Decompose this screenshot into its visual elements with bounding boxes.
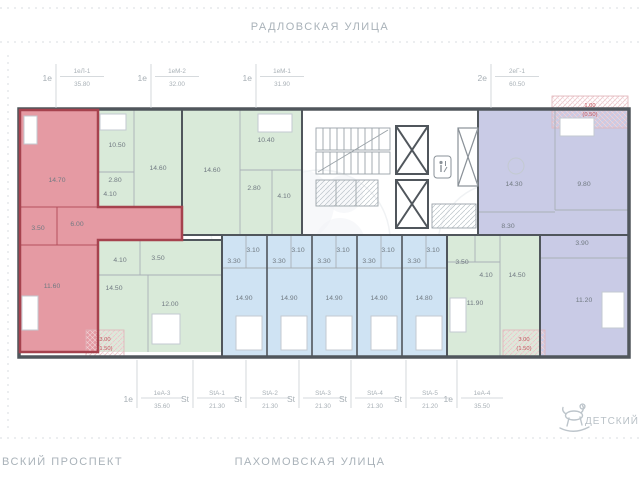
- room-label: 4.10: [113, 257, 126, 264]
- street-bottom-center: ПАХОМОВСКАЯ УЛИЦА: [235, 456, 386, 468]
- elevator-shafts: [396, 126, 428, 228]
- room-label: 3.10: [426, 247, 439, 254]
- svg-text:35.80: 35.80: [74, 81, 90, 88]
- room-label: 14.90: [370, 295, 387, 302]
- svg-text:21.20: 21.20: [422, 403, 438, 410]
- floorplan-svg: РАДЛОВСКАЯ УЛИЦА ПАХОМОВСКАЯ УЛИЦА ВСКИЙ…: [0, 0, 640, 480]
- svg-text:21.30: 21.30: [315, 403, 331, 410]
- room-label: 3.10: [291, 247, 304, 254]
- balcony-counted: (1.50): [516, 346, 531, 352]
- balcony-area: 3.00: [518, 337, 529, 343]
- room-label: 3.90: [575, 240, 588, 247]
- svg-text:32.00: 32.00: [169, 81, 185, 88]
- room-label: 14.70: [48, 177, 65, 184]
- unit-callout[interactable]: St StА-1 21.30: [181, 360, 237, 410]
- room-label: 3.30: [272, 258, 285, 265]
- room-label: 14.90: [280, 295, 297, 302]
- bottom-unit-labels: 1е 1еА-3 35.60 St StА-1 21.30 St StА-2 2…: [124, 360, 503, 410]
- svg-text:35.50: 35.50: [474, 403, 490, 410]
- room-label: 14.60: [203, 167, 220, 174]
- unit-callout[interactable]: 1е 1еМ-1 31.90: [243, 64, 304, 108]
- svg-text:1е: 1е: [138, 73, 148, 83]
- svg-text:St: St: [181, 394, 190, 404]
- svg-text:St: St: [287, 394, 296, 404]
- room-label: 11.60: [44, 283, 61, 290]
- room-label: 3.30: [362, 258, 375, 265]
- svg-text:35.60: 35.60: [154, 403, 170, 410]
- balcony-counted: (0.50): [582, 112, 597, 118]
- svg-text:1еА-4: 1еА-4: [474, 390, 491, 397]
- svg-text:2е: 2е: [478, 73, 488, 83]
- unit-callout[interactable]: 1е 1еА-3 35.60: [124, 360, 183, 410]
- unit-callout[interactable]: 1е 1еМ-2 32.00: [138, 64, 199, 108]
- svg-text:StА-1: StА-1: [209, 390, 225, 397]
- unit-callout[interactable]: 1е 1еА-4 35.50: [444, 360, 503, 410]
- room-label: 14.80: [415, 295, 432, 302]
- room-label: 11.90: [467, 300, 484, 307]
- balcony-area: 3.00: [99, 337, 110, 343]
- svg-text:StА-4: StА-4: [367, 390, 383, 397]
- room-label: 14.90: [235, 295, 252, 302]
- svg-text:St: St: [394, 394, 403, 404]
- room-label: 3.10: [336, 247, 349, 254]
- svg-text:21.30: 21.30: [367, 403, 383, 410]
- room-label: 4.10: [103, 191, 116, 198]
- room-label: 3.30: [407, 258, 420, 265]
- svg-text:1еА-3: 1еА-3: [154, 390, 171, 397]
- unit-callout[interactable]: St StА-5 21.20: [394, 360, 450, 410]
- room-label: 14.30: [505, 181, 522, 188]
- room-label: 14.60: [149, 165, 166, 172]
- room-label: 14.50: [105, 285, 122, 292]
- street-top: РАДЛОВСКАЯ УЛИЦА: [251, 21, 389, 33]
- svg-text:1е: 1е: [243, 73, 253, 83]
- floorplan-screenshot: РАДЛОВСКАЯ УЛИЦА ПАХОМОВСКАЯ УЛИЦА ВСКИЙ…: [0, 0, 640, 480]
- unit-callout[interactable]: St StА-4 21.30: [339, 360, 395, 410]
- room-label: 10.40: [257, 137, 274, 144]
- svg-text:1е: 1е: [43, 73, 53, 83]
- room-label: 14.50: [508, 272, 525, 279]
- room-label: 3.50: [31, 225, 44, 232]
- svg-text:1еЛ-1: 1еЛ-1: [74, 68, 91, 75]
- street-bottom-left: ВСКИЙ ПРОСПЕКТ: [2, 455, 123, 468]
- balcony-a4: [503, 330, 545, 357]
- room-label: 4.10: [479, 272, 492, 279]
- room-label: 3.30: [317, 258, 330, 265]
- svg-text:60.50: 60.50: [509, 81, 525, 88]
- svg-text:St: St: [234, 394, 243, 404]
- room-label: 3.50: [151, 255, 164, 262]
- room-label: 8.30: [501, 223, 514, 230]
- svg-text:St: St: [339, 394, 348, 404]
- service-shaft: [458, 128, 478, 186]
- core-vestibule-hatch: [316, 180, 378, 206]
- top-unit-labels: 1е 1еЛ-1 35.80 1е 1еМ-2 32.00 1е 1еМ-1 3…: [43, 64, 539, 108]
- svg-text:StА-5: StА-5: [422, 390, 438, 397]
- svg-text:1е: 1е: [124, 394, 134, 404]
- stair-core: [316, 128, 390, 174]
- room-label: 14.90: [325, 295, 342, 302]
- svg-text:2еГ-1: 2еГ-1: [509, 68, 526, 75]
- room-label: 12.00: [161, 301, 178, 308]
- balcony-counted: (1.50): [97, 346, 112, 352]
- svg-text:1е: 1е: [444, 394, 454, 404]
- svg-text:21.30: 21.30: [209, 403, 225, 410]
- svg-text:1еМ-1: 1еМ-1: [273, 68, 291, 75]
- svg-text:1еМ-2: 1еМ-2: [168, 68, 186, 75]
- room-label: 11.20: [576, 297, 593, 304]
- svg-text:StА-2: StА-2: [262, 390, 278, 397]
- svg-text:31.90: 31.90: [274, 81, 290, 88]
- room-label: 3.30: [227, 258, 240, 265]
- balcony-area: 1.00: [584, 103, 595, 109]
- room-label: 2.80: [247, 185, 260, 192]
- svg-text:21.30: 21.30: [262, 403, 278, 410]
- room-label: 10.50: [108, 142, 125, 149]
- room-label: 6.00: [70, 221, 83, 228]
- svg-text:StА-3: StА-3: [315, 390, 331, 397]
- unit-callout[interactable]: 2е 2еГ-1 60.50: [478, 64, 539, 108]
- room-label: 2.80: [108, 177, 121, 184]
- unit-callout[interactable]: St StА-3 21.30: [287, 360, 343, 410]
- unit-callout[interactable]: St StА-2 21.30: [234, 360, 290, 410]
- elevator-accessibility-icon: [434, 156, 451, 178]
- unit-callout[interactable]: 1е 1еЛ-1 35.80: [43, 64, 104, 108]
- room-label: 3.50: [455, 259, 468, 266]
- landmark-label: ДЕТСКИЙ: [585, 414, 639, 427]
- room-label: 9.80: [577, 181, 590, 188]
- room-label: 3.10: [246, 247, 259, 254]
- room-label: 3.10: [381, 247, 394, 254]
- core-storage-hatch: [432, 204, 476, 228]
- room-label: 4.10: [277, 193, 290, 200]
